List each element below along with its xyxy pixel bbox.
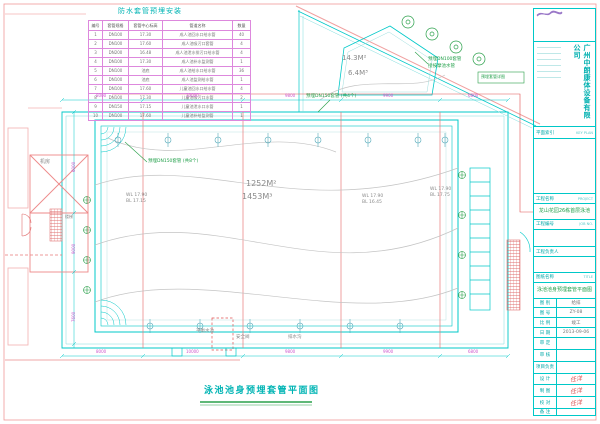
drafter-stamp: 任洋 <box>569 385 582 396</box>
bottom-level-2: BL 16.45 <box>362 201 382 206</box>
title-label: 图纸名称 <box>536 274 554 280</box>
tb-value: 2013-09-06 <box>557 328 595 337</box>
tb-row-type: 图 别 给排 <box>534 299 595 309</box>
signature-squiggle <box>534 9 564 19</box>
cell: 17.30 <box>129 94 163 103</box>
tb-row-approved: 审 定 <box>534 338 595 350</box>
pool-area-label: 1252M² <box>246 180 276 189</box>
col-header: 管道名称 <box>163 21 233 31</box>
cell: 4 <box>233 85 251 94</box>
dim-left-3: 7600 <box>72 312 76 322</box>
bottom-fittings <box>172 348 236 356</box>
sleeve-table-title: 防水套管预埋安装 <box>118 8 182 16</box>
main-pool-outline <box>95 120 458 332</box>
drawing-title: 泳池池身预埋套管平面图 <box>534 283 595 298</box>
dim-bottom-5: 6800 <box>468 350 478 354</box>
proofer-stamp: 任洋 <box>569 397 582 408</box>
leader-lines <box>5 52 533 360</box>
tb-row-scale: 比 例 竣工 <box>534 318 595 328</box>
project-label: 工程名称 <box>536 196 554 202</box>
cell: 池底 <box>129 67 163 76</box>
tb-row-lead: 项目负责 <box>534 362 595 374</box>
cell: 6 <box>89 76 103 85</box>
project-label-row: 工程名称 PROJECT <box>534 194 595 204</box>
cell: DN150 <box>103 103 129 112</box>
tb-label: 比 例 <box>534 318 557 327</box>
tb-value: 竣工 <box>557 318 595 327</box>
manager-label: 工程负责人 <box>536 249 559 255</box>
cell: 儿童池泄水口水管 <box>163 103 233 112</box>
cell: 17.60 <box>129 112 163 121</box>
title-en: TITLE <box>584 275 593 279</box>
tb-label: 日 期 <box>534 328 557 337</box>
manager-label-row: 工程负责人 <box>534 247 595 257</box>
spa-area-label: 14.3M² <box>342 55 366 63</box>
cell: DN100 <box>103 85 129 94</box>
tb-row-date: 日 期 2013-09-06 <box>534 328 595 338</box>
key-plan-row: 平面索引 KEY PLAN <box>534 127 595 139</box>
cell: 4 <box>233 49 251 58</box>
dim-top-5: 6800 <box>468 94 478 98</box>
cell: 1 <box>233 112 251 121</box>
job-number-box <box>534 230 595 248</box>
balance-tank-label: 平衡水池 <box>196 330 214 335</box>
job-en: JOB NO. <box>579 222 593 226</box>
balance-tank <box>212 318 233 350</box>
gutter-label: 排水沟 <box>288 336 302 341</box>
tb-value: ZY-08 <box>557 308 595 317</box>
dim-top-3: 9800 <box>285 94 295 98</box>
tb-row-proof: 校 对 任洋 <box>534 397 595 409</box>
col-header: 套管规格 <box>103 21 129 31</box>
bottom-level-3: BL 17.75 <box>430 194 450 199</box>
project-en: PROJECT <box>578 197 593 201</box>
tb-row-design: 设 计 任洋 <box>534 374 595 386</box>
inlet-symbols <box>83 171 466 299</box>
machine-room-label: 机房 <box>40 160 50 166</box>
cell: 17.60 <box>129 85 163 94</box>
cell: 9 <box>89 103 103 112</box>
title-block: 广州中朗康体设备有限公司 平面索引 KEY PLAN 工程名称 PROJECT … <box>533 8 596 416</box>
project-name-box: 龙山花园26栋首层泳池 <box>534 204 595 220</box>
cell: 4 <box>89 58 103 67</box>
key-plan-box <box>534 139 595 194</box>
tb-row-draft: 制 图 任洋 <box>534 385 595 397</box>
title-label-row: 图纸名称 TITLE <box>534 273 595 283</box>
cell: 4 <box>233 40 251 49</box>
pool-deck-outline <box>62 112 508 348</box>
tb-label: 备 注 <box>534 409 557 415</box>
wet-deck-steps <box>470 168 490 310</box>
cell: 36 <box>233 67 251 76</box>
job-label: 工程编号 <box>536 221 554 227</box>
dim-bottom-3: 9800 <box>285 350 295 354</box>
col-header: 数量 <box>233 21 251 31</box>
tb-value: 给排 <box>557 299 595 308</box>
signature-mark <box>557 350 595 361</box>
cell: 17.60 <box>129 40 163 49</box>
safety-valve-label: 安全阀 <box>236 336 250 341</box>
key-plan-label: 平面索引 <box>536 130 554 136</box>
company-name: 广州中朗康体设备有限公司 <box>572 44 592 124</box>
diagonal-edge <box>296 6 540 128</box>
dim-top-2: 10000 <box>186 94 199 98</box>
cell: DN100 <box>103 67 129 76</box>
dim-left-2: 9000 <box>72 244 76 254</box>
access-ramp <box>507 232 530 310</box>
cell: 成人池泄水排污口给水管 <box>163 49 233 58</box>
cell: 5 <box>89 67 103 76</box>
designer-stamp: 任洋 <box>569 374 582 385</box>
cell: 成人池给水口给水管 <box>163 67 233 76</box>
cell: 10 <box>89 112 103 121</box>
project-name: 龙山花园26栋首层泳池 <box>534 204 595 219</box>
cell: 3 <box>89 49 103 58</box>
stair-hatch <box>50 209 62 241</box>
sheet-title: 泳池池身预埋套管平面图 <box>204 387 320 397</box>
spa-volume-label: 6.4M³ <box>348 70 368 78</box>
cell: 17.30 <box>129 31 163 40</box>
tb-label: 图 号 <box>534 308 557 317</box>
dim-top-1: 8000 <box>96 94 106 98</box>
tb-value <box>557 409 595 415</box>
cell: 1 <box>89 31 103 40</box>
cell: 成人池回水口给水管 <box>163 31 233 40</box>
sleeve-note-spa2: 接按摩池水管 <box>428 65 455 70</box>
sleeve-note-left: 预埋DN150套管 (共8个) <box>148 160 198 165</box>
col-header: 套管中心标高 <box>129 21 163 31</box>
tb-row-number: 图 号 ZY-08 <box>534 308 595 318</box>
bottom-level-1: BL 17.15 <box>126 200 146 205</box>
cell: DN100 <box>103 94 129 103</box>
cell: 池底 <box>129 76 163 85</box>
title-underline <box>200 402 312 405</box>
signature-mark <box>557 362 595 373</box>
dimension-lines <box>60 98 510 358</box>
cell: 1 <box>233 103 251 112</box>
tb-label: 校 对 <box>534 397 557 408</box>
cell: 2 <box>233 94 251 103</box>
signature-mark <box>557 338 595 349</box>
dim-top-4: 9900 <box>383 94 393 98</box>
cell: 成人池监测给水管 <box>163 76 233 85</box>
sleeve-table: 编号 套管规格 套管中心标高 管道名称 数量 1 DN100 17.30 成人池… <box>88 20 251 121</box>
dim-bottom-2: 10000 <box>186 350 199 354</box>
tb-label: 制 图 <box>534 385 557 396</box>
drawing-sheet: 防水套管预埋安装 编号 套管规格 套管中心标高 管道名称 数量 1 DN100 … <box>0 0 600 424</box>
tb-label: 项目负责 <box>534 362 557 373</box>
col-header: 编号 <box>89 21 103 31</box>
company-box: 广州中朗康体设备有限公司 <box>534 42 595 127</box>
tb-label: 审 定 <box>534 338 557 349</box>
dim-bottom-1: 8000 <box>96 350 106 354</box>
cell: DN100 <box>103 58 129 67</box>
tb-label: 图 别 <box>534 299 557 308</box>
step-arcs <box>101 127 126 325</box>
manager-box <box>534 257 595 273</box>
cell: DN100 <box>103 31 129 40</box>
cell: 17.15 <box>129 103 163 112</box>
cell: DN100 <box>103 112 129 121</box>
cell: DN200 <box>103 49 129 58</box>
cell: DN100 <box>103 40 129 49</box>
tb-row-checked: 审 核 <box>534 350 595 362</box>
cell: 2 <box>89 40 103 49</box>
cell: 40 <box>233 31 251 40</box>
drawing-title-box: 泳池池身预埋套管平面图 <box>534 283 595 299</box>
cell: 17.30 <box>129 58 163 67</box>
cell: 成人池吸污口套管 <box>163 40 233 49</box>
cell: 成人池补水监测管 <box>163 58 233 67</box>
pool-volume-label: 1453M³ <box>242 193 272 202</box>
key-plan-en: KEY PLAN <box>576 131 593 135</box>
stair-label: 楼梯 <box>65 215 73 219</box>
sleeve-note-spa1: 预埋DN100套管 <box>428 58 461 63</box>
cell: 16.48 <box>129 49 163 58</box>
job-label-row: 工程编号 JOB NO. <box>534 220 595 230</box>
cell: DN100 <box>103 76 129 85</box>
tb-row-remark: 备 注 <box>534 409 595 415</box>
cell: 1 <box>233 76 251 85</box>
tb-label: 设 计 <box>534 374 557 385</box>
dim-left-1: 6000 <box>72 162 76 172</box>
sleeve-note-boxed: 预埋套管详图 <box>481 75 505 79</box>
cell: 儿童池补给监测管 <box>163 112 233 121</box>
sleeve-note-mid: 预埋DN150套管 (共4个) <box>306 95 356 100</box>
tb-label: 审 核 <box>534 350 557 361</box>
cell: 1 <box>233 58 251 67</box>
sleeve-symbols-top <box>115 133 448 147</box>
dim-bottom-4: 9900 <box>383 350 393 354</box>
